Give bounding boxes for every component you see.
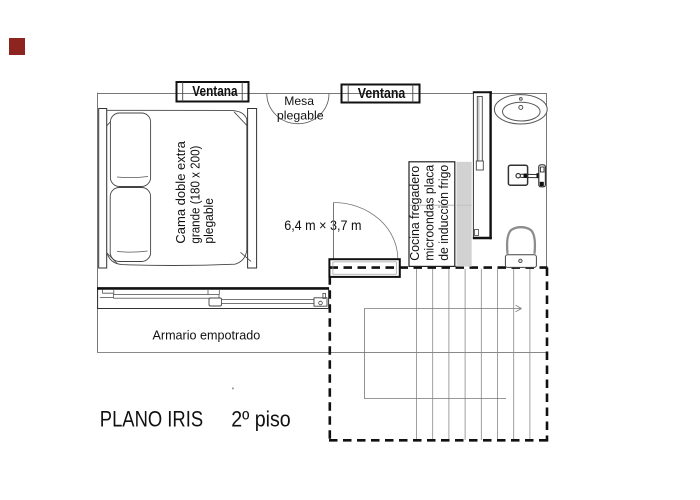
svg-text:Cama doble extra: Cama doble extra [174,141,188,244]
svg-text:Ventana: Ventana [192,83,238,100]
svg-text:microondas placa: microondas placa [423,165,437,261]
svg-text:6,4 m × 3,7 m: 6,4 m × 3,7 m [284,217,361,233]
svg-text:Cocina fregadero: Cocina fregadero [408,166,422,261]
svg-text:Mesa: Mesa [284,94,314,108]
svg-text:PLANO IRIS: PLANO IRIS [100,407,203,432]
svg-text:plegable: plegable [202,198,216,244]
svg-text:Armario empotrado: Armario empotrado [153,328,261,343]
svg-text:Ventana: Ventana [358,85,406,102]
svg-text:2º piso: 2º piso [231,407,291,432]
svg-text:plegable: plegable [277,109,324,123]
svg-text:de inducción frigo: de inducción frigo [437,165,451,261]
svg-text:grande (180 x 200): grande (180 x 200) [189,146,203,244]
